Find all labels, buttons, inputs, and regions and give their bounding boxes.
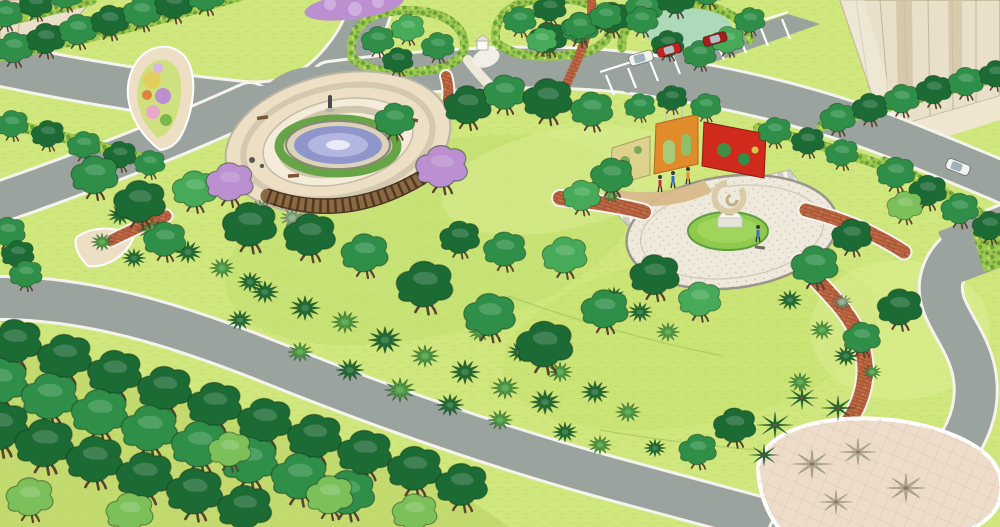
statue-base — [325, 108, 335, 112]
palm-shadow — [792, 450, 832, 479]
palm-shrub — [821, 396, 855, 421]
palm-shrub — [757, 412, 793, 438]
pedestal-front — [718, 218, 742, 227]
flower-cluster — [143, 71, 161, 89]
wall-arch-cutout — [663, 140, 675, 164]
palm-shrub — [749, 444, 780, 466]
palm-shrub — [786, 386, 818, 409]
wall-arch-cutout — [681, 134, 691, 156]
flower-cluster — [142, 90, 152, 100]
rock — [249, 157, 255, 163]
flower-cluster — [153, 63, 163, 73]
rock — [260, 164, 264, 168]
flower-cluster — [146, 105, 160, 119]
gazebo-body — [477, 41, 488, 50]
wall-cutout — [634, 146, 642, 154]
flower-cluster — [155, 88, 171, 104]
wall-cutout — [717, 143, 731, 157]
park-render — [0, 0, 1000, 527]
fountain-jet — [326, 140, 350, 150]
statue — [328, 98, 332, 108]
palm-shadow — [886, 474, 926, 503]
wall-cutout — [752, 147, 759, 154]
park-render-stage — [0, 0, 1000, 527]
wall-panel — [654, 114, 698, 174]
wall-orange — [654, 114, 698, 174]
palm-shadow — [840, 439, 876, 465]
flower-cluster — [348, 2, 362, 16]
palm-shadow — [820, 490, 852, 513]
flower-cluster — [160, 114, 172, 126]
wall-cutout — [738, 153, 750, 165]
statue-head — [328, 95, 332, 99]
